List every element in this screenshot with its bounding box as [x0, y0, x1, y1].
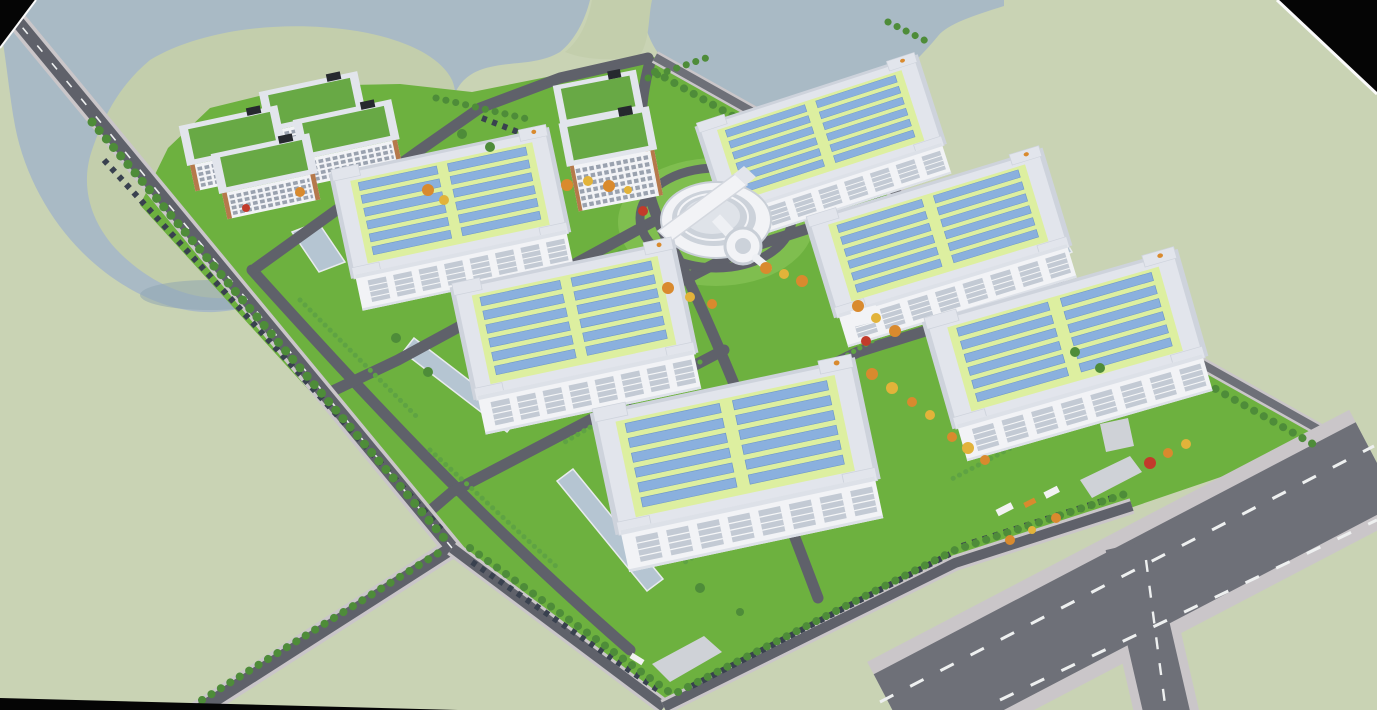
east-gate-walkway — [1100, 418, 1134, 452]
industrial-park-rendering — [0, 0, 1377, 710]
render-canvas — [0, 0, 1377, 710]
